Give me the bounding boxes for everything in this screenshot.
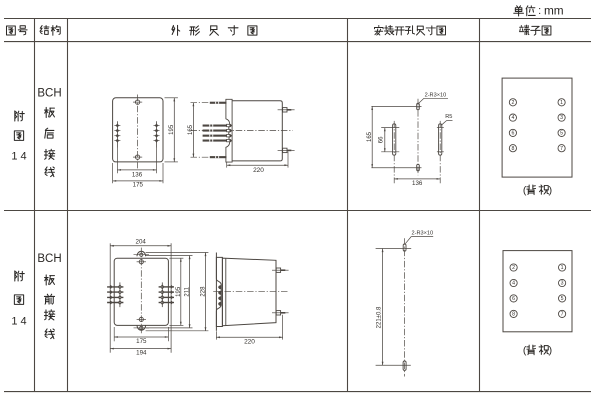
svg-text:mm: mm (544, 3, 564, 17)
svg-text:3: 3 (561, 281, 564, 287)
svg-text:175: 175 (133, 182, 144, 189)
svg-text:1: 1 (560, 100, 563, 106)
svg-text:6: 6 (512, 296, 515, 302)
svg-text:(: ( (523, 345, 527, 357)
svg-text:66: 66 (378, 136, 384, 143)
svg-text:136: 136 (412, 180, 423, 187)
svg-text:8: 8 (511, 146, 514, 152)
svg-text:1: 1 (561, 265, 564, 271)
svg-text:2-R3×10: 2-R3×10 (425, 92, 447, 98)
svg-text:6: 6 (511, 130, 514, 136)
svg-text:2-R3×10: 2-R3×10 (411, 230, 433, 236)
svg-text:2: 2 (511, 100, 514, 106)
svg-text:136: 136 (132, 171, 143, 178)
svg-text:BCH: BCH (37, 253, 61, 265)
svg-text:): ) (549, 184, 553, 196)
svg-text:220: 220 (253, 167, 264, 174)
svg-text:204: 204 (136, 238, 147, 245)
svg-text:195: 195 (176, 286, 182, 297)
svg-text:BCH: BCH (37, 88, 61, 100)
svg-text::: : (538, 5, 541, 17)
svg-text:8: 8 (512, 311, 515, 317)
svg-text:175: 175 (136, 338, 147, 345)
svg-text:5: 5 (560, 130, 563, 136)
svg-text:(: ( (523, 184, 527, 196)
svg-text:5: 5 (561, 296, 564, 302)
svg-text:220: 220 (244, 339, 255, 346)
svg-text:4: 4 (511, 115, 514, 121)
svg-text:221±0.8: 221±0.8 (376, 306, 382, 328)
svg-text:1 4: 1 4 (11, 150, 26, 162)
svg-text:194: 194 (136, 350, 147, 357)
svg-text:211: 211 (185, 286, 191, 296)
svg-text:7: 7 (561, 311, 564, 317)
svg-text:165: 165 (367, 131, 373, 142)
svg-text:3: 3 (560, 115, 563, 121)
svg-text:4: 4 (512, 281, 515, 287)
svg-text:228: 228 (200, 286, 206, 297)
svg-text:R5: R5 (445, 114, 452, 120)
svg-text:1 4: 1 4 (11, 315, 26, 327)
svg-text:165: 165 (188, 124, 194, 135)
svg-text:2: 2 (512, 265, 515, 271)
svg-text:7: 7 (560, 146, 563, 152)
svg-text:): ) (549, 345, 553, 357)
svg-text:195: 195 (169, 124, 175, 135)
